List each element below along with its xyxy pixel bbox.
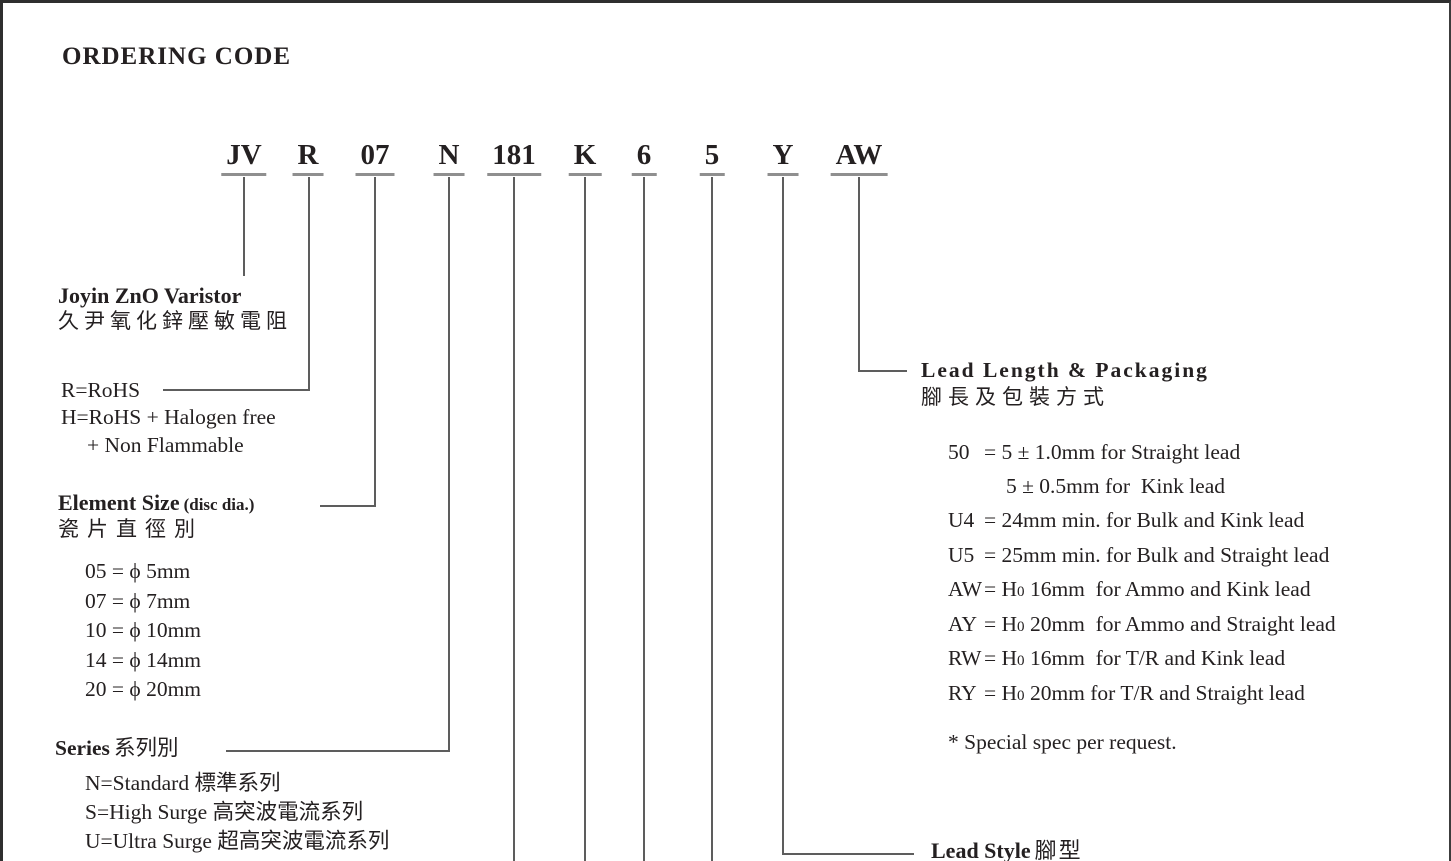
rohs-option-r: R=RoHS xyxy=(61,378,140,403)
row-h0: 0 xyxy=(1017,584,1025,600)
row-text: 5 ± 0.5mm for Kink lead xyxy=(1006,474,1225,498)
code-segment-y: Y xyxy=(768,140,799,176)
datasheet-page: ORDERING CODE JV R 07 N 181 K 6 5 Y AW J… xyxy=(0,0,1451,861)
row-text: 16mm for Ammo and Kink lead xyxy=(1025,577,1311,601)
row-code: 50 xyxy=(948,440,984,465)
code-segment-07: 07 xyxy=(356,140,395,176)
lead-style-zh: 腳型 xyxy=(1035,838,1083,861)
lead-length-row-50-cont: 5 ± 0.5mm for Kink lead xyxy=(1006,474,1225,499)
series-option-n: N=Standard 標準系列 xyxy=(85,771,280,796)
element-size-subtitle: (disc dia.) xyxy=(184,495,255,514)
row-text: = H xyxy=(984,612,1017,636)
element-size-option-05: 05 = ϕ 5mm xyxy=(85,559,190,584)
lead-style-heading: Lead Style 腳型 xyxy=(931,838,1083,861)
element-size-title: Element Size xyxy=(58,490,180,515)
row-text: = H xyxy=(984,646,1017,670)
rohs-option-h: H=RoHS + Halogen free xyxy=(61,405,276,430)
row-h0: 0 xyxy=(1017,619,1025,635)
lead-length-row-aw: AW= H0 16mm for Ammo and Kink lead xyxy=(948,577,1311,602)
line-07-horizontal xyxy=(320,505,376,507)
series-option-s: S=High Surge 高突波電流系列 xyxy=(85,800,363,825)
code-segment-jv: JV xyxy=(221,140,266,176)
row-text: = H xyxy=(984,681,1017,705)
element-size-option-14: 14 = ϕ 14mm xyxy=(85,648,201,673)
row-text: 16mm for T/R and Kink lead xyxy=(1025,646,1286,670)
line-aw-drop xyxy=(858,177,860,372)
brand-name-zh: 久尹氧化鋅壓敏電阻 xyxy=(58,309,292,333)
line-6-drop xyxy=(643,177,645,861)
lead-length-row-rw: RW= H0 16mm for T/R and Kink lead xyxy=(948,646,1285,671)
line-r-drop xyxy=(308,177,310,391)
code-segment-k: K xyxy=(569,140,602,176)
lead-length-row-50: 50= 5 ± 1.0mm for Straight lead xyxy=(948,440,1240,465)
row-text: 20mm for Ammo and Straight lead xyxy=(1025,612,1336,636)
series-title: Series xyxy=(55,736,110,760)
row-code: AY xyxy=(948,612,984,637)
code-segment-aw: AW xyxy=(831,140,888,176)
line-k-drop xyxy=(584,177,586,861)
row-text: 20mm for T/R and Straight lead xyxy=(1025,681,1305,705)
row-text: = 5 ± 1.0mm for Straight lead xyxy=(984,440,1240,464)
lead-length-row-u4: U4= 24mm min. for Bulk and Kink lead xyxy=(948,508,1304,533)
line-181-drop xyxy=(513,177,515,861)
line-07-drop xyxy=(374,177,376,507)
row-code: AW xyxy=(948,577,984,602)
line-aw-horizontal xyxy=(858,370,907,372)
lead-length-row-ay: AY= H0 20mm for Ammo and Straight lead xyxy=(948,612,1336,637)
element-size-option-07: 07 = ϕ 7mm xyxy=(85,589,190,614)
lead-style-title: Lead Style xyxy=(931,838,1031,861)
element-size-zh: 瓷片直徑別 xyxy=(58,517,203,541)
code-segment-5: 5 xyxy=(700,140,725,176)
row-code: U4 xyxy=(948,508,984,533)
series-title-zh: 系列別 xyxy=(114,736,179,760)
line-y-drop xyxy=(782,177,784,855)
code-segment-n: N xyxy=(434,140,465,176)
row-h0: 0 xyxy=(1017,688,1025,704)
lead-length-title: Lead Length & Packaging xyxy=(921,358,1209,383)
rohs-option-h-cont: + Non Flammable xyxy=(87,433,244,458)
code-segment-6: 6 xyxy=(632,140,657,176)
page-title: ORDERING CODE xyxy=(62,43,291,72)
brand-name-en: Joyin ZnO Varistor xyxy=(58,283,241,308)
row-text: = 24mm min. for Bulk and Kink lead xyxy=(984,508,1304,532)
row-code: U5 xyxy=(948,543,984,568)
element-size-option-20: 20 = ϕ 20mm xyxy=(85,677,201,702)
line-jv-drop xyxy=(243,177,245,276)
row-text: = H xyxy=(984,577,1017,601)
series-option-u: U=Ultra Surge 超高突波電流系列 xyxy=(85,829,389,854)
row-code: RY xyxy=(948,681,984,706)
code-segment-r: R xyxy=(293,140,324,176)
lead-length-row-u5: U5= 25mm min. for Bulk and Straight lead xyxy=(948,543,1329,568)
row-h0: 0 xyxy=(1017,653,1025,669)
lead-length-row-ry: RY= H0 20mm for T/R and Straight lead xyxy=(948,681,1305,706)
element-size-heading: Element Size (disc dia.) xyxy=(58,490,254,515)
code-segment-181: 181 xyxy=(487,140,541,176)
line-5-drop xyxy=(711,177,713,861)
series-heading: Series 系列別 xyxy=(55,736,178,761)
line-n-horizontal xyxy=(226,750,450,752)
line-n-drop xyxy=(448,177,450,752)
element-size-option-10: 10 = ϕ 10mm xyxy=(85,618,201,643)
special-spec-note: * Special spec per request. xyxy=(948,730,1177,755)
row-text: = 25mm min. for Bulk and Straight lead xyxy=(984,543,1329,567)
line-y-horizontal xyxy=(782,853,914,855)
lead-length-zh: 腳長及包裝方式 xyxy=(921,385,1110,409)
line-r-horizontal xyxy=(163,389,310,391)
row-code: RW xyxy=(948,646,984,671)
